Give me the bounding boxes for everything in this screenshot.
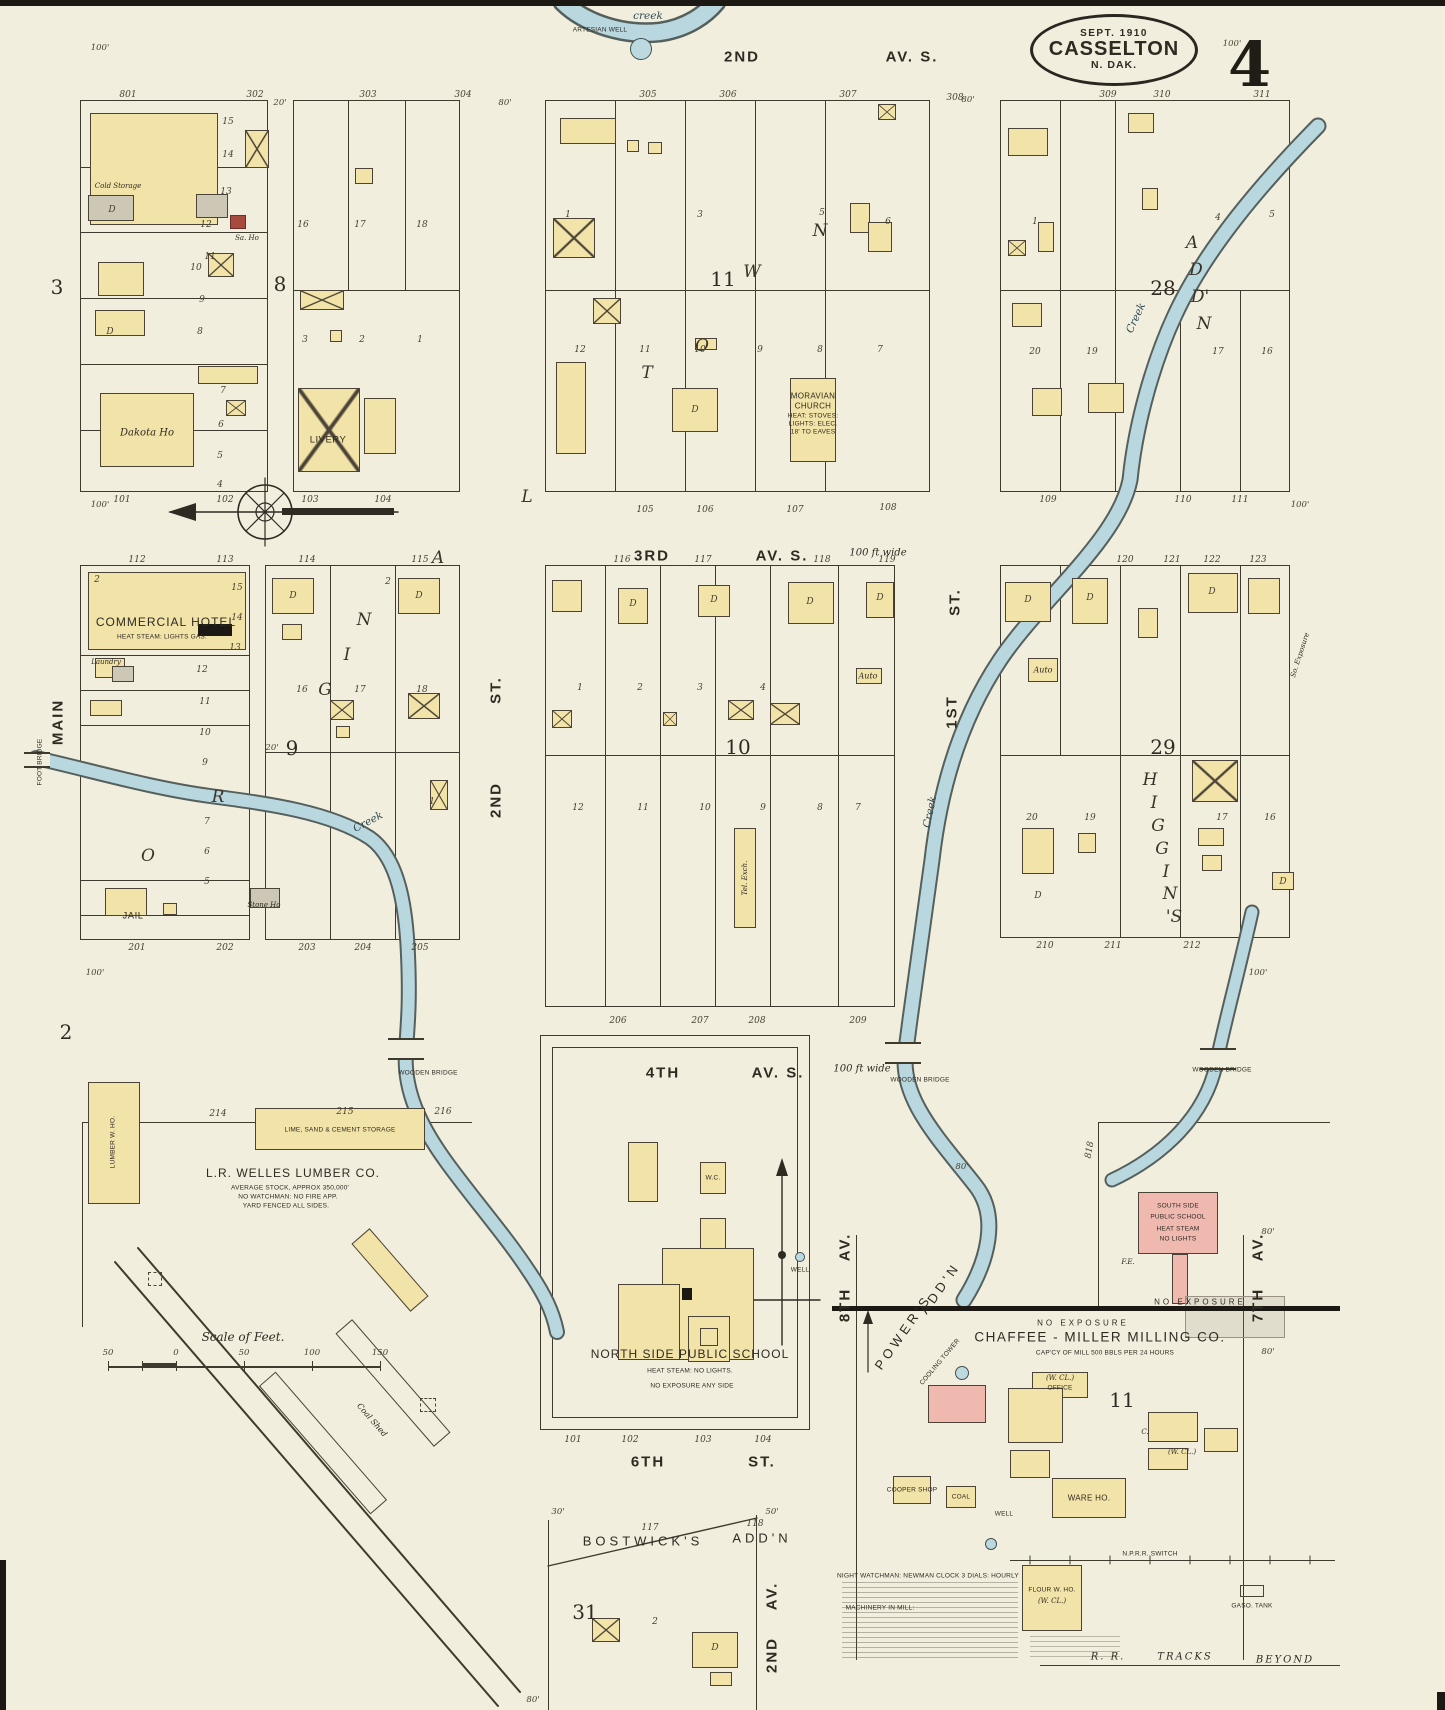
map-label: WARE HO. <box>1068 1494 1111 1503</box>
map-label: NIGHT WATCHMAN: NEWMAN CLOCK 3 DIALS: HO… <box>837 1573 1019 1580</box>
map-label: 2 <box>94 575 100 585</box>
map-label: 20' <box>273 98 286 108</box>
map-label: LUMBER W. HO. <box>110 1116 117 1168</box>
map-city-name: CASSELTON <box>1049 39 1180 60</box>
map-label: AV. <box>837 1233 854 1262</box>
map-label: 7 <box>855 803 861 813</box>
map-label: 203 <box>298 943 315 953</box>
map-label: N.P.R.R. SWITCH <box>1122 1551 1177 1558</box>
map-label: NO WATCHMAN: NO FIRE APP. <box>238 1194 338 1201</box>
map-label: 102 <box>216 495 233 505</box>
map-label: 107 <box>786 505 803 515</box>
map-label: AV. S. <box>886 49 939 66</box>
map-label: D' <box>1191 287 1209 307</box>
map-label: 13 <box>220 187 231 197</box>
map-label: Auto <box>859 672 878 681</box>
map-label: 123 <box>1249 555 1266 565</box>
map-label: 2 <box>385 577 391 587</box>
map-label: BEYOND <box>1256 1655 1314 1666</box>
map-label: 6TH <box>631 1454 665 1471</box>
map-label: 100 <box>304 1348 320 1358</box>
map-label: 100' <box>1291 500 1310 510</box>
map-label: LIVERY <box>310 435 347 446</box>
map-label: 216 <box>434 1107 451 1117</box>
map-label: 208 <box>748 1016 765 1026</box>
map-label: D <box>806 597 813 607</box>
map-label: 4 <box>1215 213 1221 223</box>
map-label: 4 <box>760 683 766 693</box>
map-label: 31 <box>572 1600 597 1624</box>
map-label: 201 <box>128 943 145 953</box>
map-label: Laundry <box>91 658 121 666</box>
map-label: 306 <box>719 90 736 100</box>
map-label: 29 <box>1150 735 1175 759</box>
map-label: HEAT STEAM: NO LIGHTS. <box>647 1368 733 1375</box>
map-label: 303 <box>359 90 376 100</box>
map-label: 304 <box>454 90 471 100</box>
map-label: 119 <box>878 555 895 565</box>
map-label: 5 <box>819 208 825 218</box>
map-label: 50 <box>103 1348 114 1358</box>
map-label: 80' <box>961 95 974 105</box>
map-label: Cold Storage <box>95 182 141 190</box>
map-label: 150 <box>372 1348 388 1358</box>
map-label: 7TH <box>1250 1288 1267 1322</box>
map-label: 50' <box>765 1507 778 1517</box>
map-label: 16 <box>297 220 308 230</box>
map-label: (W. CL.) <box>1168 1448 1196 1456</box>
map-label: G <box>1155 839 1169 859</box>
map-label: 120 <box>1116 555 1133 565</box>
map-label: 20' <box>265 743 278 753</box>
map-label: 17 <box>1216 813 1227 823</box>
map-label: 121 <box>1163 555 1180 565</box>
map-label: 11 <box>639 345 650 355</box>
map-label: 8 <box>274 272 287 296</box>
map-label: 112 <box>128 555 145 565</box>
map-label: 8 <box>817 345 823 355</box>
map-label: R. R. <box>1091 1652 1126 1663</box>
map-label: N <box>357 610 372 630</box>
map-label: 3RD <box>634 548 670 565</box>
map-label: 50 <box>239 1348 250 1358</box>
map-label: 15 <box>231 583 242 593</box>
map-label: 9 <box>202 758 208 768</box>
map-label: 7 <box>877 345 883 355</box>
map-label: 117 <box>641 1523 658 1533</box>
map-label: COOPER SHOP <box>887 1487 938 1494</box>
map-label: 109 <box>1039 495 1056 505</box>
map-label: R <box>212 787 225 807</box>
map-label: ARTESIAN WELL <box>573 27 628 34</box>
map-label: 114 <box>298 555 315 565</box>
map-label: 3 <box>302 335 308 345</box>
map-label: N <box>813 221 828 241</box>
map-label: LIME, SAND & CEMENT STORAGE <box>285 1127 396 1134</box>
map-label: D <box>289 591 296 601</box>
map-label: 113 <box>216 555 233 565</box>
map-label: Creek <box>351 809 385 835</box>
map-label: N <box>1163 884 1178 904</box>
map-label: 10 <box>694 345 705 355</box>
map-label: 11 <box>637 803 648 813</box>
map-label: 105 <box>636 505 653 515</box>
map-label: 17 <box>354 220 365 230</box>
map-label: PUBLIC SCHOOL <box>1150 1214 1205 1221</box>
map-label: 12 <box>200 220 211 230</box>
map-label: D <box>1279 877 1286 887</box>
map-label: 80' <box>955 1162 968 1172</box>
map-label: 11 <box>199 697 210 707</box>
map-label: (W. CL.) <box>1038 1597 1066 1605</box>
map-label: 10 <box>699 803 710 813</box>
map-label: 212 <box>1183 941 1200 951</box>
map-label: JAIL <box>122 911 143 922</box>
map-label: Sa. Ho <box>235 234 259 242</box>
map-label: 207 <box>691 1016 708 1026</box>
map-label: G <box>318 680 332 700</box>
map-label: 2 <box>652 1617 658 1627</box>
map-label: WOODEN BRIDGE <box>398 1070 457 1077</box>
map-label: Stone Ho <box>247 901 280 909</box>
map-label: 4 <box>217 480 223 490</box>
map-label: 307 <box>839 90 856 100</box>
map-label: 108 <box>879 503 896 513</box>
map-label: L <box>521 487 532 507</box>
map-label: 1 <box>577 683 583 693</box>
map-label: MACHINERY IN MILL: <box>846 1605 915 1612</box>
map-label: creek <box>633 10 663 22</box>
map-label: 16 <box>296 685 307 695</box>
map-label: 122 <box>1203 555 1220 565</box>
map-label: 5 <box>1269 210 1275 220</box>
map-label: 2 <box>359 335 365 345</box>
map-state-name: N. DAK. <box>1091 60 1137 71</box>
map-label: 80' <box>1261 1227 1274 1237</box>
map-label: Auto <box>1034 666 1053 675</box>
map-label: 11 <box>710 267 735 291</box>
map-label: 309 <box>1099 90 1116 100</box>
map-label: L.R. WELLES LUMBER CO. <box>206 1166 380 1180</box>
map-label: 206 <box>609 1016 626 1026</box>
map-label: ADD'N <box>917 1259 963 1316</box>
map-label: 801 <box>119 90 136 100</box>
map-label: N <box>1197 314 1212 334</box>
map-label: WOODEN BRIDGE <box>1192 1067 1251 1074</box>
map-label: D <box>1189 260 1203 280</box>
map-title-oval: SEPT. 1910 CASSELTON N. DAK. <box>1030 14 1198 86</box>
map-label: 2 <box>637 683 643 693</box>
map-label: 17 <box>1212 347 1223 357</box>
map-label: 118 <box>746 1519 763 1529</box>
map-label: 9 <box>760 803 766 813</box>
map-label: 117 <box>694 555 711 565</box>
map-label: 19 <box>1086 347 1097 357</box>
map-label: NO LIGHTS <box>1160 1236 1197 1243</box>
map-label: Tel. Exch. <box>741 861 749 896</box>
map-label: Creek <box>1124 301 1148 335</box>
map-label: 18 <box>416 685 427 695</box>
map-label: 10 <box>190 263 201 273</box>
map-label: 100' <box>1249 968 1268 978</box>
map-label: 30' <box>551 1507 564 1517</box>
map-label: D <box>415 591 422 601</box>
map-label: ADD'N <box>732 1531 791 1546</box>
labels-layer: 100'creekARTESIAN WELL2NDAV. S.100'38112… <box>0 0 1445 1710</box>
map-label: 202 <box>216 943 233 953</box>
map-label: 214 <box>209 1109 226 1119</box>
map-label: 7 <box>204 817 210 827</box>
map-label: AV. <box>764 1582 781 1611</box>
map-label: C. <box>1141 1428 1148 1436</box>
map-label: 118 <box>813 555 830 565</box>
map-label: 80' <box>526 1695 539 1705</box>
map-label: 10 <box>725 735 750 759</box>
map-label: LIGHTS: ELEC. <box>789 421 837 428</box>
map-label: 215 <box>336 1107 353 1117</box>
map-label: 17 <box>354 685 365 695</box>
map-label: 2ND <box>764 1637 781 1673</box>
map-label: CHURCH <box>795 402 831 411</box>
map-label: A <box>432 548 444 568</box>
map-label: A <box>1186 233 1198 253</box>
map-label: 1 <box>417 335 423 345</box>
map-label: 818 <box>1084 1141 1097 1160</box>
map-label: D <box>1024 595 1031 605</box>
map-label: 80' <box>1261 1347 1274 1357</box>
map-label: 14 <box>231 613 242 623</box>
map-label: 9 <box>199 295 205 305</box>
map-label: 204 <box>354 943 371 953</box>
map-label: 2 <box>60 1020 73 1044</box>
map-label: 101 <box>113 495 130 505</box>
map-label: 18' TO EAVES <box>791 429 835 436</box>
map-label: D <box>1086 593 1093 603</box>
map-label: HEAT STEAM <box>1157 1226 1200 1233</box>
map-label: WELL <box>995 1511 1014 1518</box>
map-label: ST. <box>488 676 505 704</box>
map-label: 6 <box>218 420 224 430</box>
map-label: 11 <box>1109 1388 1134 1412</box>
map-label: Coal Shed <box>355 1401 389 1438</box>
map-label: WELL <box>791 1267 810 1274</box>
sheet-number: 4 <box>1228 28 1271 101</box>
map-label: 'S <box>1166 907 1182 927</box>
map-label: 100' <box>86 968 105 978</box>
map-label: AVERAGE STOCK, APPROX 350,000' <box>231 1185 349 1192</box>
map-label: NO EXPOSURE <box>1037 1319 1129 1328</box>
map-label: 28 <box>1150 276 1175 300</box>
map-label: 8 <box>197 327 203 337</box>
map-label: 305 <box>639 90 656 100</box>
map-label: ST. <box>748 1454 776 1471</box>
map-label: 102 <box>621 1435 638 1445</box>
map-label: 1 <box>429 797 435 807</box>
map-label: D <box>876 593 883 603</box>
map-label: 20 <box>1029 347 1040 357</box>
map-label: BOSTWICK'S <box>583 1534 704 1549</box>
map-label: AV. <box>1250 1233 1267 1262</box>
map-label: W.C. <box>706 1175 721 1182</box>
map-label: FOOT BRIDGE <box>37 739 44 786</box>
map-label: T <box>641 363 652 383</box>
map-label: 6 <box>885 217 891 227</box>
map-label: 3 <box>697 683 703 693</box>
map-label: D <box>691 405 698 415</box>
map-label: 12 <box>196 665 207 675</box>
map-label: ST. <box>947 588 964 616</box>
map-label: 116 <box>613 555 630 565</box>
map-label: 12 <box>572 803 583 813</box>
map-label: HEAT STEAM: LIGHTS GAS. <box>117 634 207 641</box>
map-label: 3 <box>51 275 64 299</box>
map-label: 310 <box>1153 90 1170 100</box>
map-label: SOUTH SIDE <box>1157 1203 1199 1210</box>
map-label: 211 <box>1104 941 1121 951</box>
map-label: FLOUR W. HO. <box>1028 1587 1075 1594</box>
map-label: H <box>1143 770 1158 790</box>
map-label: 18 <box>416 220 427 230</box>
map-label: MORAVIAN <box>791 392 835 401</box>
map-label: I <box>1151 793 1158 813</box>
map-label: 80' <box>498 98 511 108</box>
map-label: 1 <box>565 210 571 220</box>
map-label: 10 <box>199 728 210 738</box>
map-label: G <box>1151 816 1165 836</box>
map-label: D <box>106 327 113 337</box>
map-label: 9 <box>286 736 299 760</box>
map-label: 4TH <box>646 1065 680 1082</box>
map-label: 1 <box>1032 217 1038 227</box>
map-label: 210 <box>1036 941 1053 951</box>
map-label: NORTH SIDE PUBLIC SCHOOL <box>591 1347 789 1361</box>
map-label: 106 <box>696 505 713 515</box>
map-label: 209 <box>849 1016 866 1026</box>
map-label: COOLING TOWER <box>919 1337 962 1386</box>
map-label: 103 <box>301 495 318 505</box>
map-label: 104 <box>754 1435 771 1445</box>
map-label: 3 <box>697 210 703 220</box>
map-label: (W. CL.) <box>1046 1374 1074 1382</box>
map-label: 205 <box>411 943 428 953</box>
map-label: D <box>1034 891 1041 901</box>
map-label: 2ND <box>488 782 505 818</box>
map-label: D <box>710 595 717 605</box>
map-label: W <box>743 262 760 282</box>
map-label: 15 <box>222 117 233 127</box>
map-label: 8TH <box>837 1288 854 1322</box>
map-label: 14 <box>222 150 233 160</box>
map-label: NO EXPOSURE ANY SIDE <box>650 1383 733 1390</box>
map-label: 111 <box>1231 495 1248 505</box>
map-label: 115 <box>411 555 428 565</box>
map-label: 302 <box>246 90 263 100</box>
map-label: 5 <box>204 877 210 887</box>
map-label: COMMERCIAL HOTEL <box>96 615 236 629</box>
map-label: 110 <box>1174 495 1191 505</box>
map-label: 19 <box>1084 813 1095 823</box>
map-label: D <box>108 205 115 215</box>
map-label: 16 <box>1264 813 1275 823</box>
sanborn-map-sheet: 100'creekARTESIAN WELL2NDAV. S.100'38112… <box>0 0 1445 1710</box>
map-label: 20 <box>1026 813 1037 823</box>
map-label: D <box>629 599 636 609</box>
map-label: GASO. TANK <box>1231 1603 1272 1610</box>
map-label: 7 <box>220 386 226 396</box>
map-label: 100' <box>91 500 110 510</box>
map-label: Scale of Feet. <box>202 1330 285 1344</box>
map-label: COAL <box>952 1494 971 1501</box>
map-label: 6 <box>204 847 210 857</box>
map-label: 104 <box>374 495 391 505</box>
map-label: WOODEN BRIDGE <box>890 1077 949 1084</box>
map-label: CHAFFEE - MILLER MILLING CO. <box>974 1330 1225 1345</box>
map-label: 100 ft wide <box>833 1064 890 1075</box>
map-label: MAIN <box>50 699 67 745</box>
map-label: D <box>1208 587 1215 597</box>
map-label: 0 <box>173 1348 178 1358</box>
map-label: I <box>344 645 351 665</box>
map-label: D <box>711 1643 718 1653</box>
map-label: AV. S. <box>756 548 809 565</box>
map-label: 101 <box>564 1435 581 1445</box>
map-label: Creek <box>921 795 939 829</box>
map-label: YARD FENCED ALL SIDES. <box>243 1203 329 1210</box>
map-label: 5 <box>217 451 223 461</box>
map-label: I <box>1163 862 1170 882</box>
map-label: 2ND <box>724 49 760 66</box>
map-label: NO EXPOSURE <box>1154 1298 1246 1307</box>
map-label: 9 <box>757 345 763 355</box>
map-label: Dakota Ho <box>120 428 174 439</box>
map-label: 11 <box>204 252 215 262</box>
map-label: 8 <box>817 803 823 813</box>
map-label: 100' <box>91 43 110 53</box>
map-label: 12 <box>574 345 585 355</box>
map-label: 1ST <box>944 695 961 729</box>
map-label: HEAT: STOVES: <box>788 413 838 420</box>
map-label: AV. S. <box>752 1065 805 1082</box>
map-label: CAP'CY OF MILL 500 BBLS PER 24 HOURS <box>1036 1350 1174 1357</box>
map-label: O <box>141 846 155 866</box>
map-label: So. Exposure <box>1289 632 1311 679</box>
map-label: F.E. <box>1121 1258 1134 1266</box>
map-label: 103 <box>694 1435 711 1445</box>
map-label: TRACKS <box>1157 1652 1212 1663</box>
map-label: 13 <box>229 643 240 653</box>
map-label: OFFICE <box>1047 1385 1072 1392</box>
map-label: 16 <box>1261 347 1272 357</box>
